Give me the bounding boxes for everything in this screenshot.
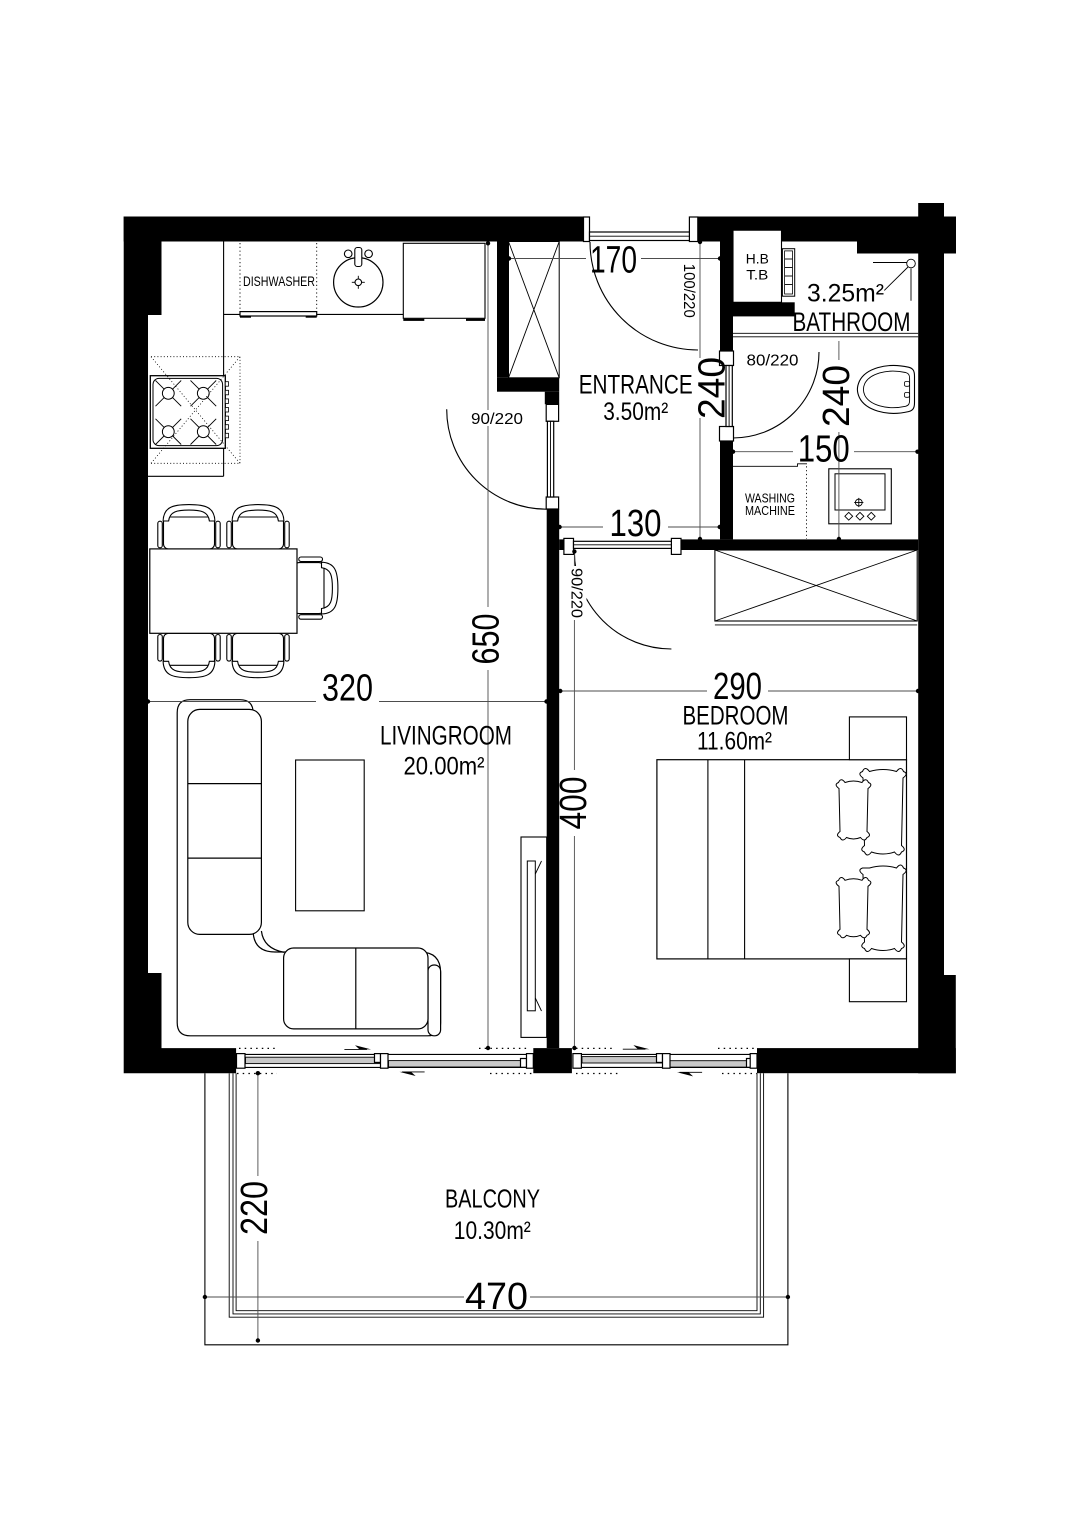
svg-text:20.00m²: 20.00m² (404, 753, 485, 781)
svg-text:90/220: 90/220 (568, 568, 585, 618)
svg-text:80/220: 80/220 (747, 353, 799, 370)
svg-text:T.B: T.B (746, 267, 768, 283)
svg-text:320: 320 (322, 668, 373, 710)
svg-text:170: 170 (590, 240, 637, 282)
svg-text:130: 130 (610, 503, 662, 545)
svg-text:650: 650 (466, 614, 508, 665)
svg-text:100/220: 100/220 (680, 264, 697, 318)
svg-text:DISHWASHER: DISHWASHER (243, 274, 315, 289)
svg-text:3.25m²: 3.25m² (807, 280, 884, 308)
svg-text:10.30m²: 10.30m² (454, 1217, 531, 1245)
svg-text:400: 400 (553, 777, 595, 830)
svg-text:BATHROOM: BATHROOM (793, 307, 911, 337)
svg-text:BALCONY: BALCONY (445, 1184, 540, 1214)
svg-text:220: 220 (234, 1181, 276, 1235)
svg-text:11.60m²: 11.60m² (697, 728, 772, 756)
svg-text:MACHINE: MACHINE (745, 503, 795, 518)
svg-text:H.B: H.B (746, 251, 769, 267)
svg-text:240: 240 (816, 365, 858, 427)
svg-text:3.50m²: 3.50m² (603, 398, 668, 426)
svg-text:240: 240 (692, 357, 734, 419)
svg-text:90/220: 90/220 (471, 411, 523, 428)
svg-text:BEDROOM: BEDROOM (683, 701, 789, 731)
svg-text:ENTRANCE: ENTRANCE (579, 369, 693, 399)
svg-text:470: 470 (465, 1276, 528, 1318)
svg-text:150: 150 (798, 429, 850, 471)
svg-text:LIVINGROOM: LIVINGROOM (380, 721, 512, 751)
